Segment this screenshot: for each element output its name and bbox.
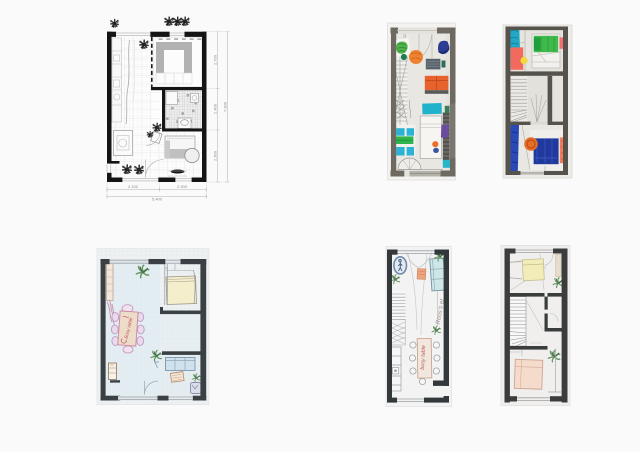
svg-text:busy table: busy table	[420, 345, 427, 370]
svg-text:2.102: 2.102	[128, 184, 139, 189]
svg-text:7.900: 7.900	[222, 101, 227, 112]
svg-text:2.790: 2.790	[212, 54, 217, 65]
svg-text:5.400: 5.400	[152, 197, 163, 202]
svg-text:2.400: 2.400	[212, 103, 217, 114]
svg-text:2.300: 2.300	[177, 184, 188, 189]
svg-text:2.300: 2.300	[212, 150, 217, 161]
